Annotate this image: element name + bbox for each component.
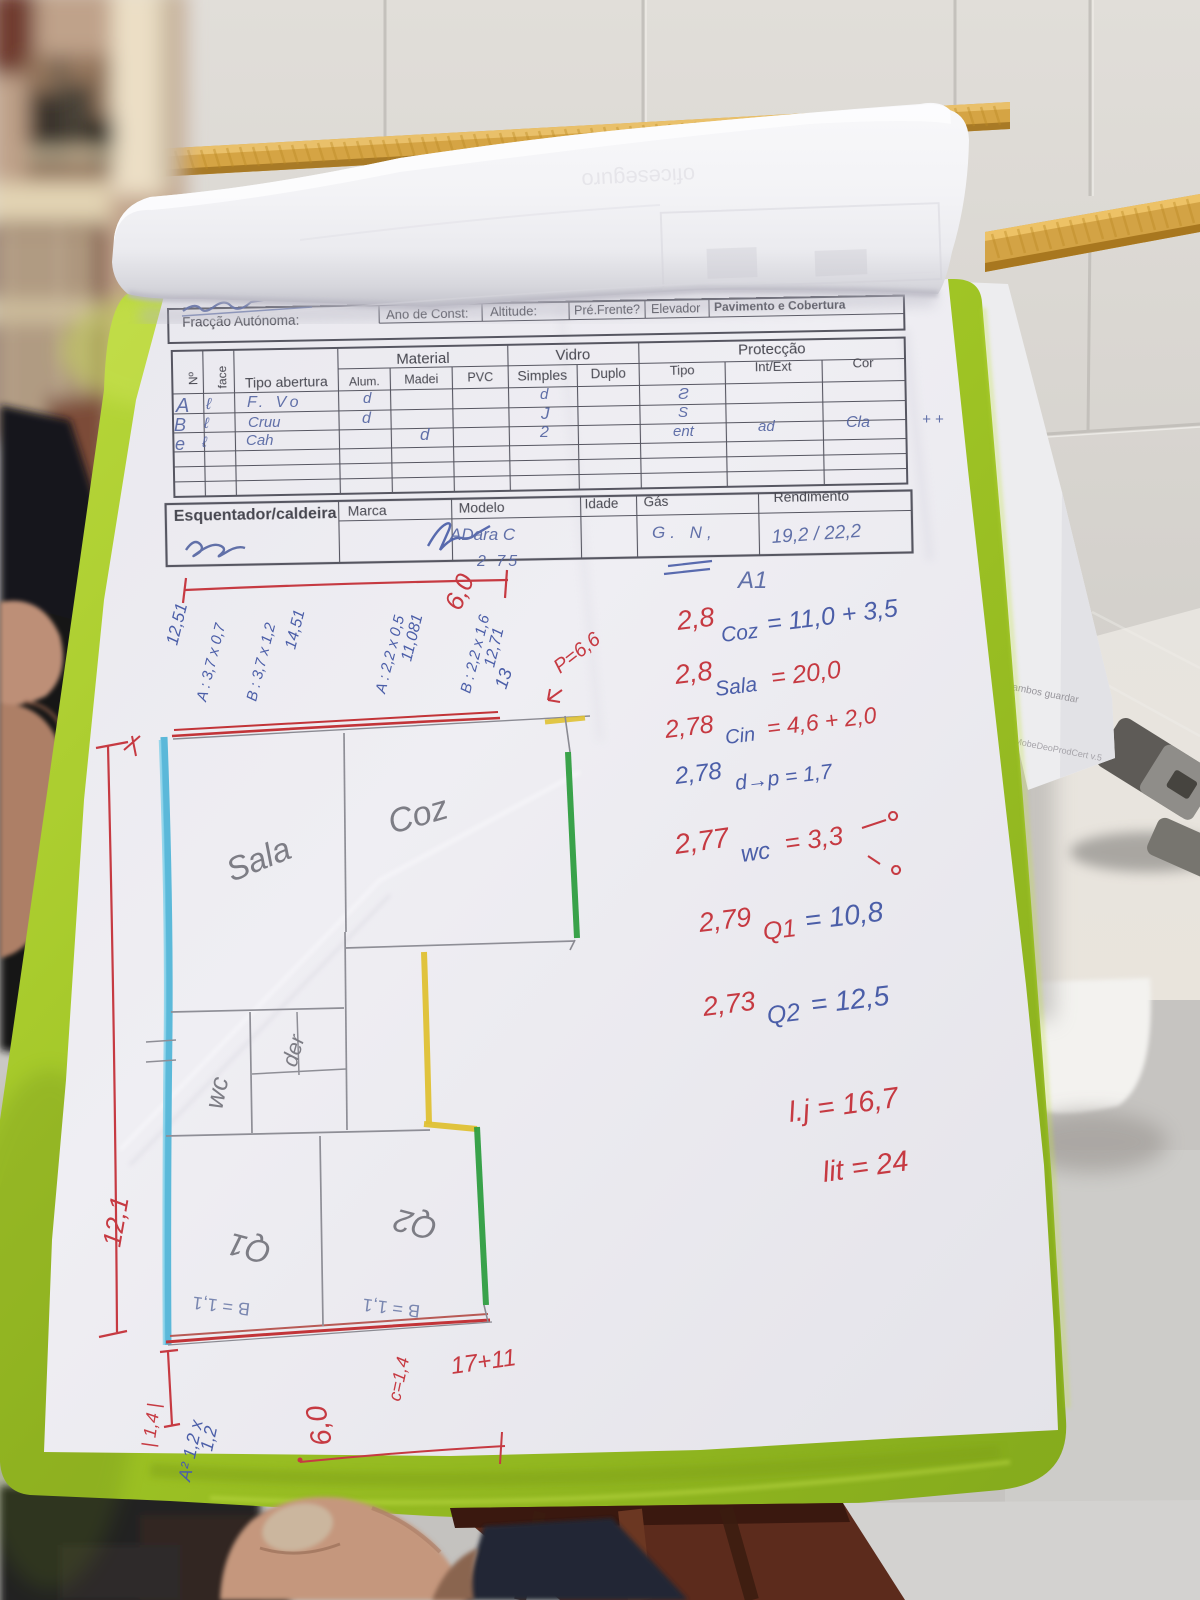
svg-text:Idade: Idade [584,496,618,512]
svg-text:Cruu: Cruu [248,414,281,431]
svg-text:d: d [362,410,372,427]
svg-text:e: e [175,434,185,454]
svg-text:Cor: Cor [852,355,874,370]
svg-text:d: d [363,390,372,407]
svg-text:ℓ: ℓ [205,396,212,413]
svg-text:ent: ent [673,423,695,440]
svg-text:wc: wc [739,837,772,868]
svg-text:Alum.: Alum. [349,374,380,389]
svg-text:2: 2 [539,424,549,441]
svg-text:J: J [540,404,550,423]
svg-text:G. N,: G. N, [652,523,717,542]
svg-text:A: A [175,395,189,417]
svg-text:S: S [678,404,688,421]
svg-text:Vidro: Vidro [555,346,590,364]
svg-text:Q2: Q2 [765,998,802,1030]
svg-text:Cla: Cla [846,414,870,431]
svg-text:Tipo abertura: Tipo abertura [245,373,328,391]
svg-text:Simples: Simples [517,367,567,384]
svg-text:Rendimento: Rendimento [773,488,849,505]
svg-text:Gás: Gás [643,494,668,509]
svg-text:Material: Material [396,350,450,368]
svg-text:face: face [215,365,229,388]
svg-text:PVC: PVC [467,370,493,384]
svg-text:Q1: Q1 [761,914,798,946]
svg-text:Nº: Nº [186,371,200,385]
svg-text:ad: ad [758,418,775,435]
svg-text:Madei: Madei [404,372,438,387]
svg-text:2,8: 2,8 [672,656,714,690]
svg-text:A1: A1 [736,567,767,594]
svg-text:Ƨ: Ƨ [678,386,689,403]
svg-text:Coz: Coz [720,620,760,647]
svg-text:Marca: Marca [348,502,387,519]
svg-text:Cin: Cin [724,723,756,748]
svg-text:Int/Ext: Int/Ext [755,359,793,375]
svg-text:Tipo: Tipo [670,362,695,377]
svg-text:B: B [174,415,186,435]
svg-text:d: d [540,386,549,403]
svg-text:Duplo: Duplo [590,366,626,382]
svg-text:d: d [420,425,430,444]
svg-text:F. Vo: F. Vo [247,394,303,411]
svg-text:+ +: + + [922,411,944,428]
svg-text:Protecção: Protecção [738,340,806,358]
svg-text:Modelo: Modelo [459,499,505,516]
svg-text:2,8: 2,8 [674,602,716,636]
svg-text:2 75: 2 75 [476,553,520,570]
svg-text:Cah: Cah [246,432,274,449]
svg-text:Esquentador/caldeira: Esquentador/caldeira [174,505,337,525]
svg-text:ADara C: ADara C [449,525,516,544]
